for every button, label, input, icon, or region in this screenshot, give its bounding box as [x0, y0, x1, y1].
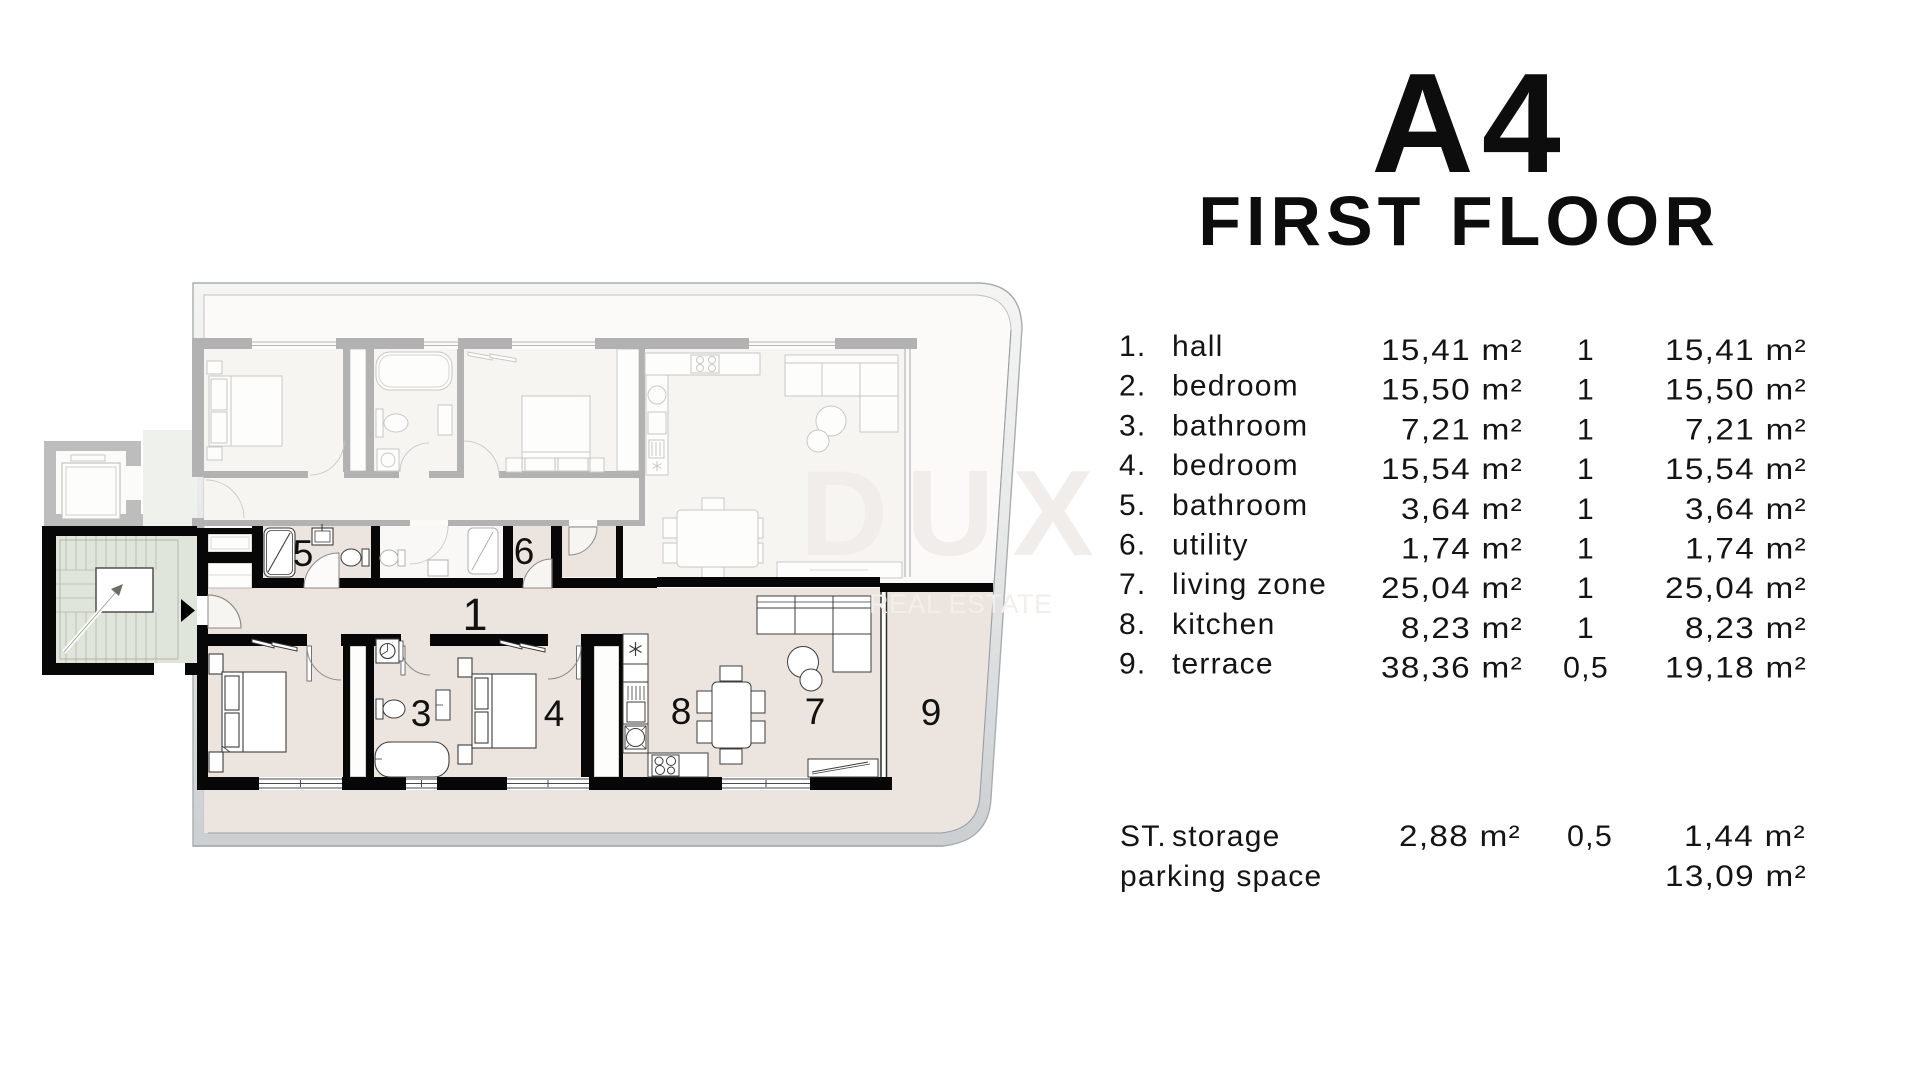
svg-text:1: 1 — [1577, 453, 1595, 486]
svg-text:4.: 4. — [1119, 449, 1146, 482]
svg-text:REAL ESTATE: REAL ESTATE — [869, 589, 1053, 619]
svg-text:1: 1 — [1577, 334, 1595, 367]
svg-text:hall: hall — [1172, 330, 1224, 363]
svg-text:15,54 m²: 15,54 m² — [1665, 453, 1807, 486]
svg-text:15,50 m²: 15,50 m² — [1381, 374, 1523, 407]
svg-text:8,23 m²: 8,23 m² — [1685, 612, 1807, 645]
svg-text:7.: 7. — [1119, 568, 1146, 601]
svg-text:1,44 m²: 1,44 m² — [1684, 820, 1806, 853]
svg-text:25,04 m²: 25,04 m² — [1381, 572, 1523, 605]
svg-text:6: 6 — [514, 531, 535, 572]
svg-text:15,41 m²: 15,41 m² — [1381, 334, 1523, 367]
svg-text:8.: 8. — [1119, 608, 1146, 641]
svg-text:ST.: ST. — [1120, 820, 1167, 853]
svg-text:kitchen: kitchen — [1172, 608, 1275, 641]
svg-text:6.: 6. — [1119, 529, 1146, 562]
svg-text:7,21 m²: 7,21 m² — [1401, 413, 1523, 446]
svg-text:2.: 2. — [1119, 370, 1146, 403]
svg-text:bedroom: bedroom — [1172, 449, 1299, 482]
svg-text:bathroom: bathroom — [1172, 489, 1308, 522]
svg-text:8: 8 — [671, 691, 692, 732]
svg-text:parking space: parking space — [1120, 860, 1322, 893]
svg-text:7,21 m²: 7,21 m² — [1685, 413, 1807, 446]
svg-text:living zone: living zone — [1172, 568, 1327, 601]
svg-text:9: 9 — [921, 692, 942, 733]
svg-text:19,18 m²: 19,18 m² — [1665, 652, 1807, 685]
svg-text:9.: 9. — [1119, 648, 1146, 681]
svg-text:5: 5 — [293, 533, 314, 574]
svg-text:3,64 m²: 3,64 m² — [1401, 493, 1523, 526]
svg-text:1,74 m²: 1,74 m² — [1401, 533, 1523, 566]
svg-text:1.: 1. — [1119, 330, 1146, 363]
svg-text:utility: utility — [1172, 529, 1249, 562]
svg-text:storage: storage — [1172, 820, 1280, 853]
svg-text:3: 3 — [411, 693, 432, 734]
svg-text:A4: A4 — [1371, 44, 1569, 203]
svg-text:0,5: 0,5 — [1567, 820, 1613, 853]
svg-text:3.: 3. — [1119, 409, 1146, 442]
svg-text:2,88 m²: 2,88 m² — [1399, 820, 1521, 853]
svg-text:1,74 m²: 1,74 m² — [1685, 533, 1807, 566]
svg-text:38,36 m²: 38,36 m² — [1381, 652, 1523, 685]
svg-text:0,5: 0,5 — [1563, 652, 1609, 685]
svg-text:1: 1 — [1577, 533, 1595, 566]
svg-text:5.: 5. — [1119, 489, 1146, 522]
svg-text:3,64 m²: 3,64 m² — [1685, 493, 1807, 526]
svg-text:15,41 m²: 15,41 m² — [1665, 334, 1807, 367]
svg-text:1: 1 — [1577, 493, 1595, 526]
svg-text:15,54 m²: 15,54 m² — [1381, 453, 1523, 486]
svg-text:15,50 m²: 15,50 m² — [1665, 374, 1807, 407]
svg-text:7: 7 — [805, 691, 826, 732]
svg-text:1: 1 — [1577, 612, 1595, 645]
svg-text:1: 1 — [1577, 413, 1595, 446]
svg-text:terrace: terrace — [1172, 648, 1274, 681]
svg-text:1: 1 — [1577, 572, 1595, 605]
svg-text:bathroom: bathroom — [1172, 409, 1308, 442]
svg-text:bedroom: bedroom — [1172, 370, 1299, 403]
svg-text:13,09 m²: 13,09 m² — [1665, 860, 1807, 893]
svg-text:FIRST FLOOR: FIRST FLOOR — [1198, 182, 1720, 260]
svg-text:1: 1 — [1577, 374, 1595, 407]
svg-text:1: 1 — [462, 589, 487, 640]
svg-text:DUX: DUX — [800, 445, 1112, 581]
svg-text:8,23 m²: 8,23 m² — [1401, 612, 1523, 645]
svg-text:25,04 m²: 25,04 m² — [1665, 572, 1807, 605]
svg-text:4: 4 — [544, 693, 565, 734]
